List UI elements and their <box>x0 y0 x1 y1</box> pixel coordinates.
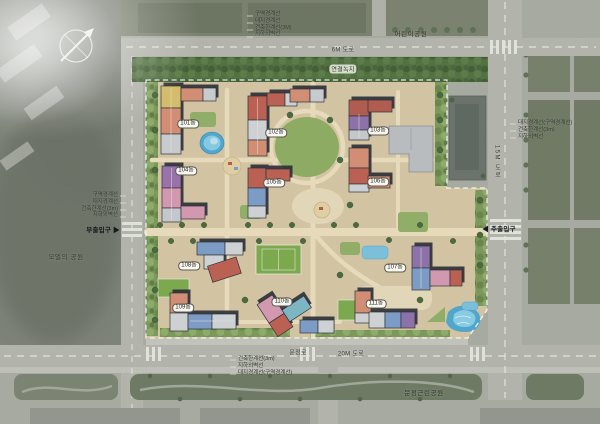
arrow-right-icon: ▶ <box>113 227 120 234</box>
annotation-line: 대지경계선(구역경계선) <box>238 370 292 377</box>
building-label-110: 110동 <box>271 298 292 307</box>
building-label-108: 108동 <box>178 262 200 271</box>
green-belt-label: 연결녹지 <box>329 65 356 74</box>
entrance-secondary-text: 부출입구 <box>86 227 111 234</box>
building-label-102: 102동 <box>265 129 287 138</box>
building-label-105: 105동 <box>263 179 285 188</box>
annotation-line: 대지경계선 <box>255 18 292 25</box>
boundary-annotation-top: 구역경계선 대지경계선 건축한계선(3M) 지하외벽선 <box>255 11 292 38</box>
boundary-annotation-left: 구역경계선 대지경계선 건축한계선(3m) 지하외벽선 <box>60 192 118 219</box>
annotation-line: 지하외벽선 <box>60 212 118 219</box>
annotation-line: 지하외벽선 <box>518 134 572 141</box>
annotation-line: 지하외벽선 <box>255 31 292 38</box>
building-label-101: 101동 <box>177 120 199 129</box>
entrance-label-secondary: 부출입구 ▶ <box>86 224 119 234</box>
road-label-15m: 15M 도로 <box>493 145 502 179</box>
entrance-label-main: ◀ 주출입구 <box>482 223 515 233</box>
building-label-104: 104동 <box>175 167 197 176</box>
arrow-left-icon: ◀ <box>482 226 489 233</box>
annotation-line: 구역경계선 <box>60 192 118 199</box>
building-label-111: 111동 <box>366 300 387 309</box>
road-label-6m: 6M 도로 <box>332 45 355 54</box>
annotation-line: 지하외벽선 <box>238 363 292 370</box>
building-label-107: 107동 <box>384 264 406 273</box>
park-label-neighborhood: 문정근린공원 <box>404 387 443 397</box>
annotation-line: 대지경계선(구역경계선) <box>518 120 572 127</box>
park-label-children: 어린이공원 <box>395 28 428 38</box>
boundary-annotation-bottom: 건축한계선(3m) 지하외벽선 대지경계선(구역경계선) <box>238 356 292 376</box>
annotation-line: 건축한계선(3m) <box>238 356 292 363</box>
site-plan-rendering: 101동 102동 103동 104동 105동 106동 107동 108동 … <box>0 0 600 424</box>
annotation-line: 구역경계선 <box>255 11 292 18</box>
annotation-line: 대지경계선 <box>60 199 118 206</box>
boundary-annotation-right: 대지경계선(구역경계선) 건축한계선(3m) 지하외벽선 <box>518 120 572 140</box>
annotation-line: 건축한계선(3m) <box>518 127 572 134</box>
entrance-main-text: 주출입구 <box>491 226 516 233</box>
building-label-109: 109동 <box>172 304 194 313</box>
building-label-103: 103동 <box>367 127 389 136</box>
building-label-106: 106동 <box>367 178 389 187</box>
road-label-20m: 20M 도로 <box>338 349 364 358</box>
park-label-west: 모델의 공원 <box>48 251 83 261</box>
